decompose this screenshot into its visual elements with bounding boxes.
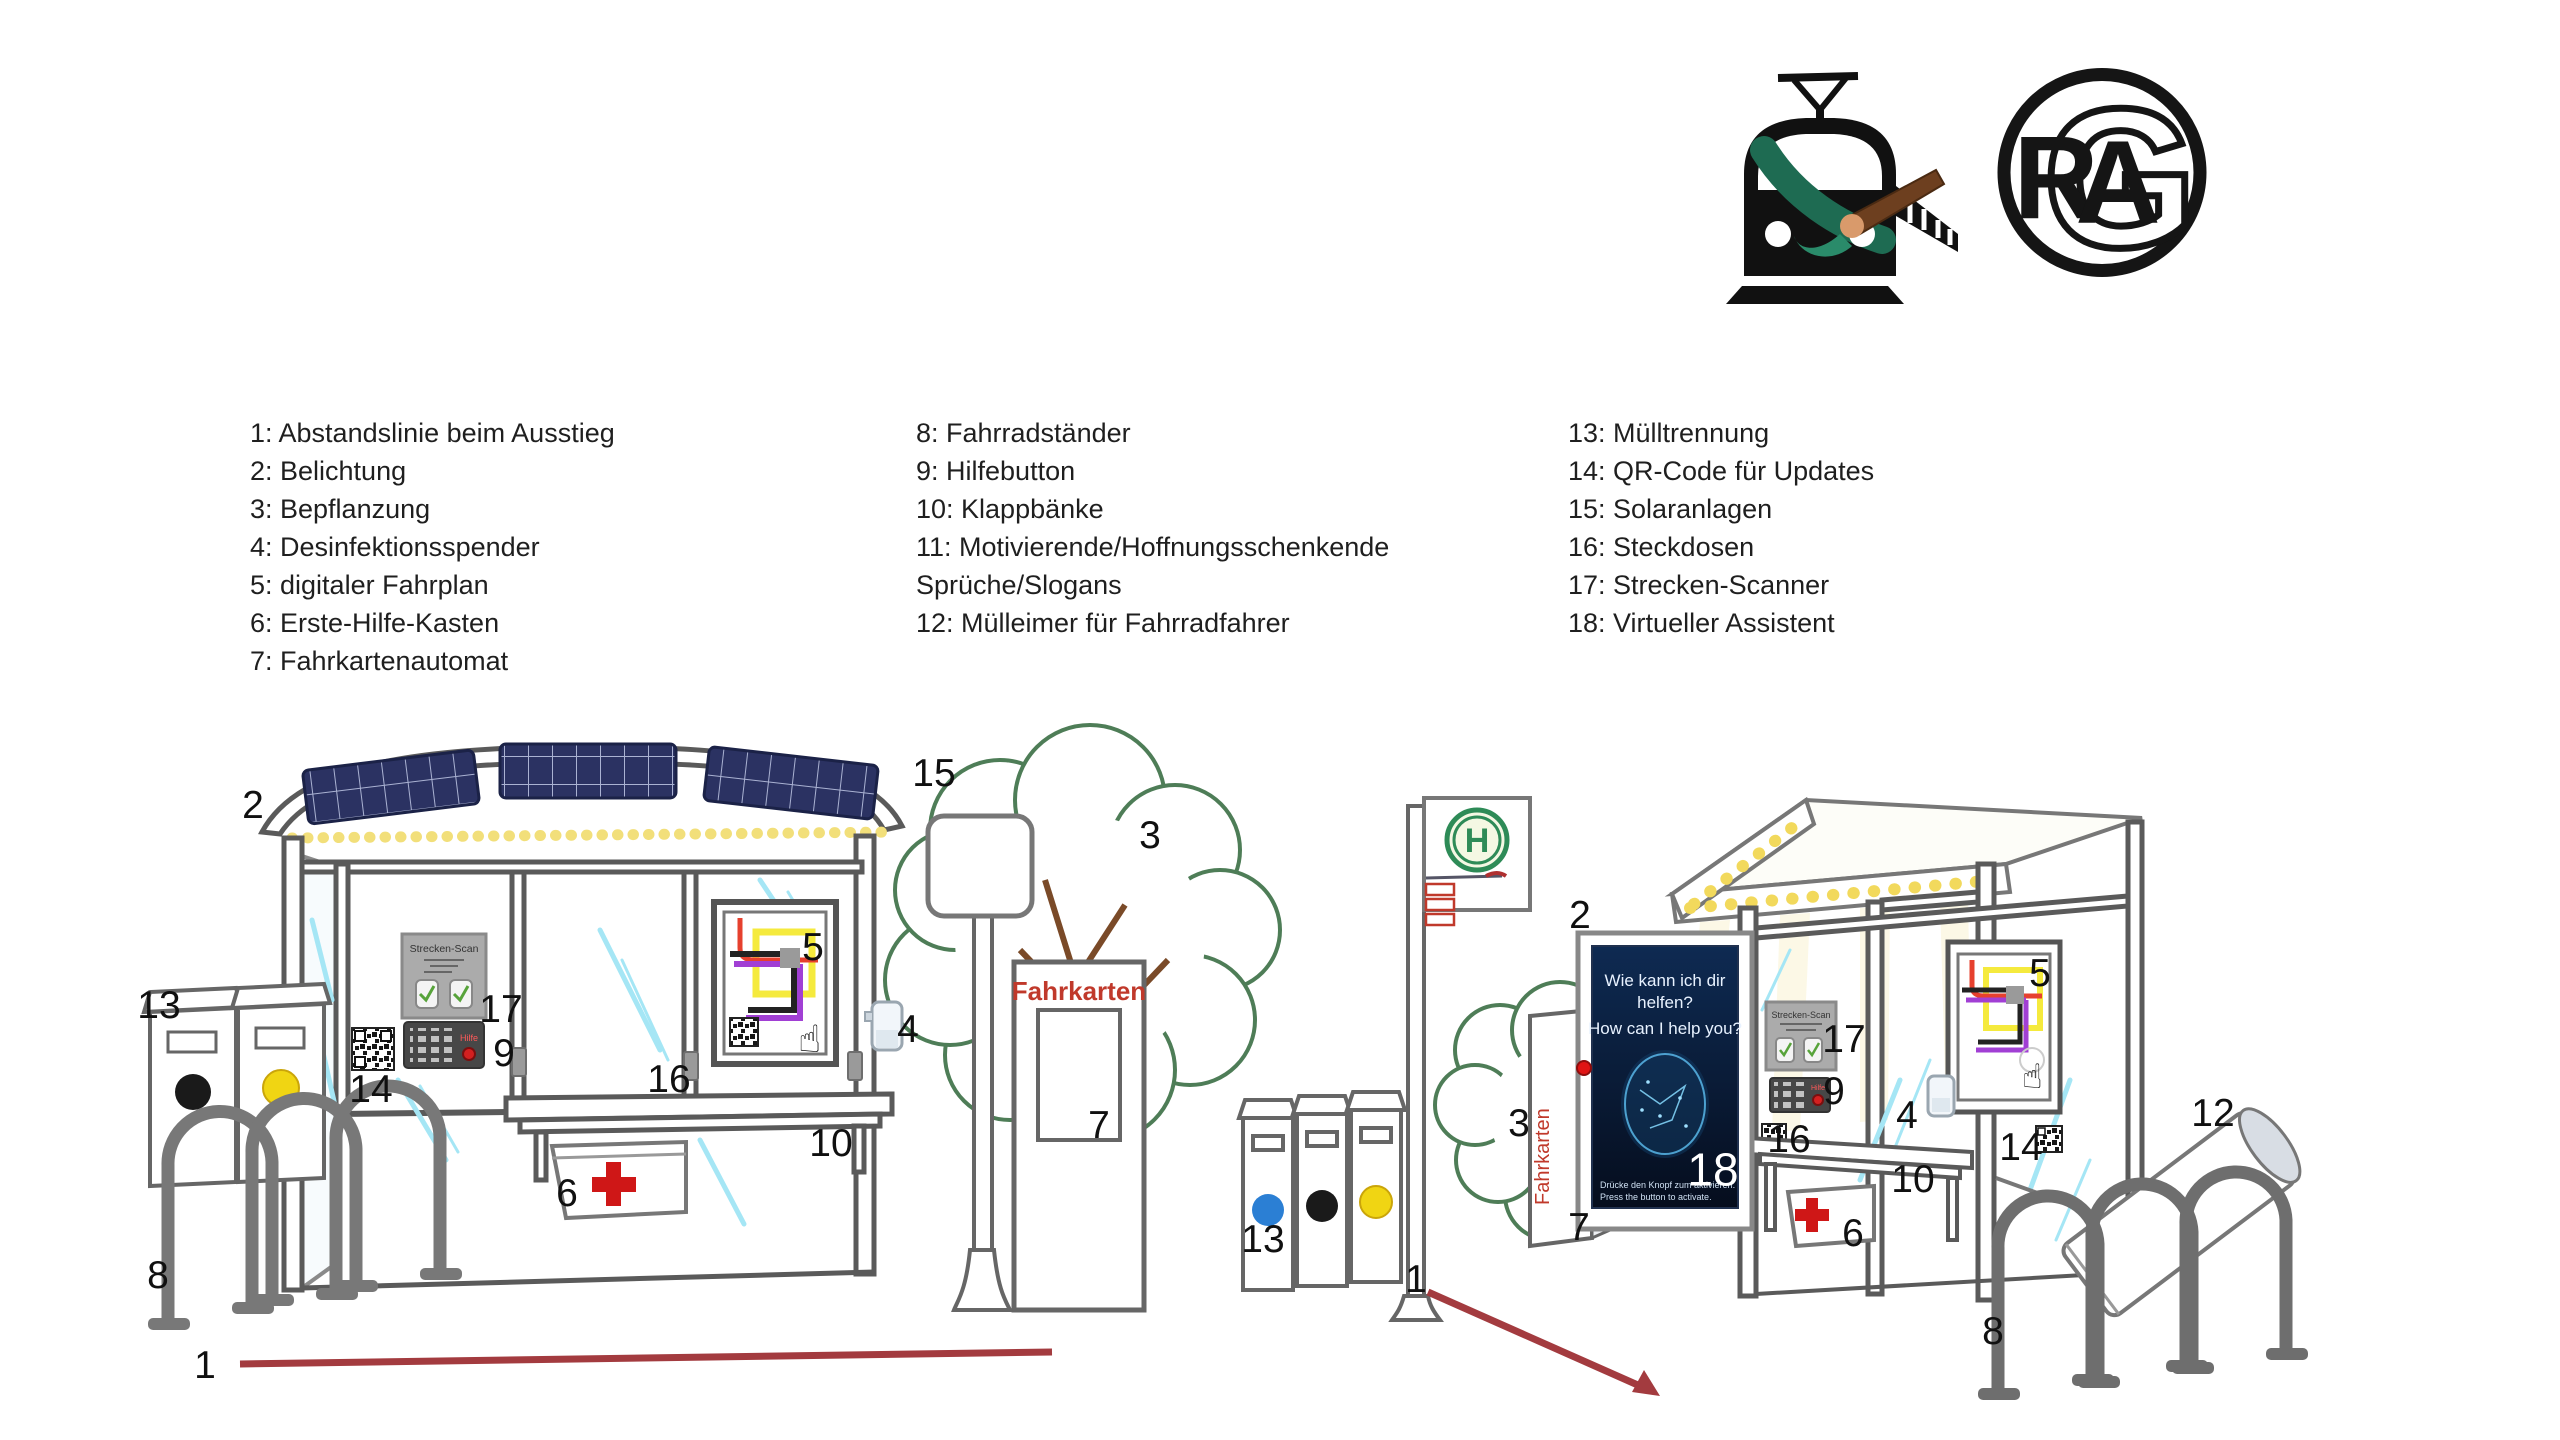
scene-marker-left-9: 9 bbox=[493, 1032, 515, 1076]
legend-column-1: 1: Abstandslinie beim Ausstieg2: Belicht… bbox=[250, 414, 615, 680]
brush-ferrule bbox=[1840, 214, 1864, 238]
scene-marker-right-12: 12 bbox=[2191, 1092, 2234, 1136]
activate-button bbox=[1577, 1061, 1591, 1075]
poster-line-2: helfen? bbox=[1637, 993, 1693, 1012]
strecken-scan-label: Strecken-Scan bbox=[410, 943, 479, 955]
scene-marker-left-14: 14 bbox=[349, 1068, 392, 1112]
help-button bbox=[1813, 1095, 1823, 1105]
fahrkarten-label-vertical: Fahrkarten bbox=[1532, 1108, 1554, 1205]
rag-logo: G R A bbox=[1982, 52, 2222, 297]
scene-marker-right-3: 3 bbox=[1508, 1102, 1530, 1146]
legend-item: 11: Motivierende/Hoffnungsschenkende bbox=[916, 528, 1389, 566]
legend-item: 17: Strecken-Scanner bbox=[1568, 566, 1874, 604]
scene-marker-right-7: 7 bbox=[1568, 1206, 1590, 1250]
legend-item: 9: Hilfebutton bbox=[916, 452, 1389, 490]
legend-column-2: 8: Fahrradständer9: Hilfebutton10: Klapp… bbox=[916, 414, 1389, 642]
legend-item: 4: Desinfektionsspender bbox=[250, 528, 615, 566]
scene-marker-left-6: 6 bbox=[556, 1172, 578, 1216]
scene-marker-left-8: 8 bbox=[147, 1254, 169, 1298]
disinfectant-dispenser-right bbox=[1928, 1076, 1954, 1116]
poster-line-1: Wie kann ich dir bbox=[1605, 971, 1726, 990]
scene-marker-left-4: 4 bbox=[897, 1008, 919, 1052]
scene-marker-right-10: 10 bbox=[1891, 1158, 1934, 1202]
solar-panel bbox=[500, 744, 676, 798]
scene-marker-right-17: 17 bbox=[1822, 1018, 1865, 1062]
solar-panel bbox=[703, 747, 878, 820]
scene-marker-left-2: 2 bbox=[242, 784, 264, 828]
scene-marker-right-6: 6 bbox=[1842, 1212, 1864, 1256]
train-paintbrush-logo bbox=[1690, 58, 1960, 308]
legend-column-3: 13: Mülltrennung14: QR-Code für Updates1… bbox=[1568, 414, 1874, 642]
legend-item: 18: Virtueller Assistent bbox=[1568, 604, 1874, 642]
legend-item: 16: Steckdosen bbox=[1568, 528, 1874, 566]
pointing-hand-icon: ☝ bbox=[798, 1017, 821, 1061]
solar-panel bbox=[302, 750, 479, 825]
distance-line-right bbox=[1428, 1292, 1660, 1396]
legend-item: 5: digitaler Fahrplan bbox=[250, 566, 615, 604]
help-button bbox=[463, 1048, 475, 1060]
bin-sticker-black bbox=[1306, 1190, 1338, 1222]
scene-marker-right-5: 5 bbox=[2029, 952, 2051, 996]
scene-marker-right-14: 14 bbox=[1999, 1126, 2042, 1170]
legend-item: Sprüche/Slogans bbox=[916, 566, 1389, 604]
legend-item: 12: Mülleimer für Fahrradfahrer bbox=[916, 604, 1389, 642]
headlight-left bbox=[1765, 221, 1791, 247]
scene-marker-right-9: 9 bbox=[1823, 1070, 1845, 1114]
fahrkarten-label: Fahrkarten bbox=[1012, 976, 1146, 1006]
pointing-hand-icon: ☝ bbox=[2022, 1057, 2043, 1097]
scene-marker-left-1: 1 bbox=[194, 1344, 216, 1388]
rag-letter-a: A bbox=[2075, 117, 2160, 249]
legend-item: 2: Belichtung bbox=[250, 452, 615, 490]
poster-line-3: How can I help you? bbox=[1588, 1019, 1742, 1038]
scene-marker-left-15: 15 bbox=[912, 752, 955, 796]
blank-sign-board bbox=[928, 816, 1032, 916]
legend-item: 6: Erste-Hilfe-Kasten bbox=[250, 604, 615, 642]
pantograph bbox=[1778, 76, 1858, 120]
help-button-keypad-right: Hilfe bbox=[1770, 1078, 1830, 1112]
ticket-machine-left: Fahrkarten bbox=[1012, 962, 1146, 1310]
scene-marker-left-7: 7 bbox=[1088, 1104, 1110, 1148]
scene-marker-left-3: 3 bbox=[1139, 814, 1161, 858]
legend-item: 7: Fahrkartenautomat bbox=[250, 642, 615, 680]
legend-item: 8: Fahrradständer bbox=[916, 414, 1389, 452]
strecken-scanner-panel: Strecken-Scan bbox=[402, 934, 486, 1018]
scene-marker-right-4: 4 bbox=[1896, 1094, 1918, 1138]
slide-canvas: Strecken-Scan bbox=[0, 0, 2560, 1440]
bin-sticker-black bbox=[175, 1074, 211, 1110]
scene-marker-left-13: 13 bbox=[137, 984, 180, 1028]
hilfe-label: Hilfe bbox=[460, 1033, 478, 1043]
scene-marker-right-16: 16 bbox=[1767, 1118, 1810, 1162]
scene-marker-left-17: 17 bbox=[479, 988, 522, 1032]
scene-marker-left-10: 10 bbox=[809, 1122, 852, 1166]
scene-marker-left-16: 16 bbox=[647, 1058, 690, 1102]
legend-item: 14: QR-Code für Updates bbox=[1568, 452, 1874, 490]
solar-panels bbox=[302, 744, 878, 824]
distance-line-left bbox=[240, 1352, 1052, 1364]
legend-item: 3: Bepflanzung bbox=[250, 490, 615, 528]
scene-marker-right-8: 8 bbox=[1982, 1310, 2004, 1354]
timetable-rows bbox=[1426, 884, 1454, 925]
scene-marker-right-1: 1 bbox=[1405, 1258, 1427, 1302]
help-button-keypad: Hilfe bbox=[404, 1022, 484, 1068]
bin-sticker-yellow bbox=[1360, 1186, 1392, 1218]
legend-item: 1: Abstandslinie beim Ausstieg bbox=[250, 414, 615, 452]
scene-marker-right-2: 2 bbox=[1569, 894, 1591, 938]
h-letter: H bbox=[1465, 822, 1490, 860]
floor-edge bbox=[302, 1272, 874, 1288]
legend-item: 15: Solaranlagen bbox=[1568, 490, 1874, 528]
legend-item: 13: Mülltrennung bbox=[1568, 414, 1874, 452]
scene-marker-right-13: 13 bbox=[1241, 1218, 1284, 1262]
scene-marker-left-5: 5 bbox=[802, 926, 824, 970]
led-light-strip bbox=[292, 832, 896, 838]
scene-marker-right-18: 18 bbox=[1687, 1142, 1738, 1196]
legend-item: 10: Klappbänke bbox=[916, 490, 1389, 528]
tram-bumper bbox=[1726, 286, 1904, 304]
qr-code-updates bbox=[352, 1028, 394, 1070]
